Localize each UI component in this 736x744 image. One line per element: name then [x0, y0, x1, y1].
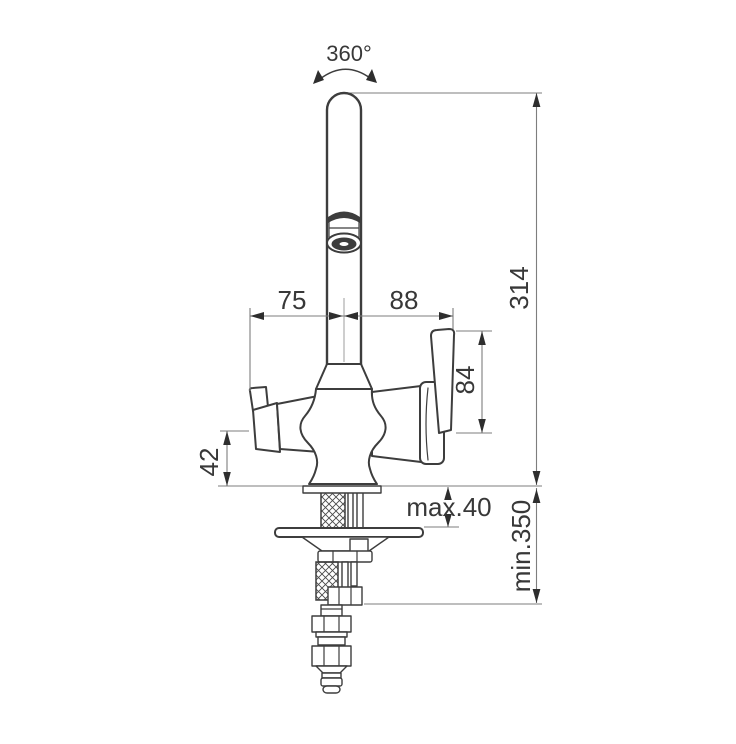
spout: [316, 93, 372, 389]
mounting-hardware: [275, 486, 423, 605]
dimension-arrows: [223, 93, 540, 603]
faucet-dimension-diagram: 360° 75 88 314 84 42 max.40 min.350: [0, 0, 736, 744]
quick-connect-fitting: [312, 605, 351, 693]
label-handle-clearance: 42: [194, 448, 224, 477]
rod-nut: [350, 539, 368, 552]
arrow-75-left: [250, 312, 264, 320]
left-handle-block: [253, 403, 280, 452]
label-overall-height: 314: [504, 266, 534, 309]
label-hose-min-length: min.350: [506, 500, 536, 593]
label-offset-right: 88: [390, 285, 419, 315]
swivel-annotation: [313, 69, 377, 84]
rod-lower-right: [351, 562, 357, 586]
dimension-labels: 360° 75 88 314 84 42 max.40 min.350: [194, 41, 536, 592]
base-underside: [303, 486, 381, 493]
rod-lower-left: [342, 562, 348, 590]
mounting-plate: [275, 528, 423, 537]
hose-elbow-nut: [328, 587, 362, 605]
arrow-84-top: [478, 331, 486, 345]
faucet-drawing: [250, 93, 454, 693]
arrow-42-top: [223, 431, 231, 445]
supply-hose-upper: [321, 492, 345, 529]
threaded-rod-right: [357, 492, 363, 529]
label-offset-left: 75: [278, 285, 307, 315]
label-handle-length: 84: [450, 366, 480, 395]
horseshoe-washer: [318, 551, 372, 562]
right-handle: [372, 329, 454, 464]
arrow-42-bottom: [223, 472, 231, 486]
spout-base-cone: [316, 364, 372, 389]
arrow-84-bottom: [478, 419, 486, 433]
swivel-arc: [320, 69, 370, 79]
label-swivel-angle: 360°: [326, 41, 372, 66]
faucet-body: [300, 389, 385, 484]
label-deck-thickness: max.40: [406, 492, 491, 522]
arrow-88-right: [439, 312, 453, 320]
mounting-cone: [302, 537, 389, 551]
threaded-rod-left: [348, 492, 353, 529]
arrow-314-top: [533, 93, 541, 107]
arrow-314-bottom: [533, 471, 541, 485]
technical-drawing-page: 360° 75 88 314 84 42 max.40 min.350: [0, 0, 736, 744]
